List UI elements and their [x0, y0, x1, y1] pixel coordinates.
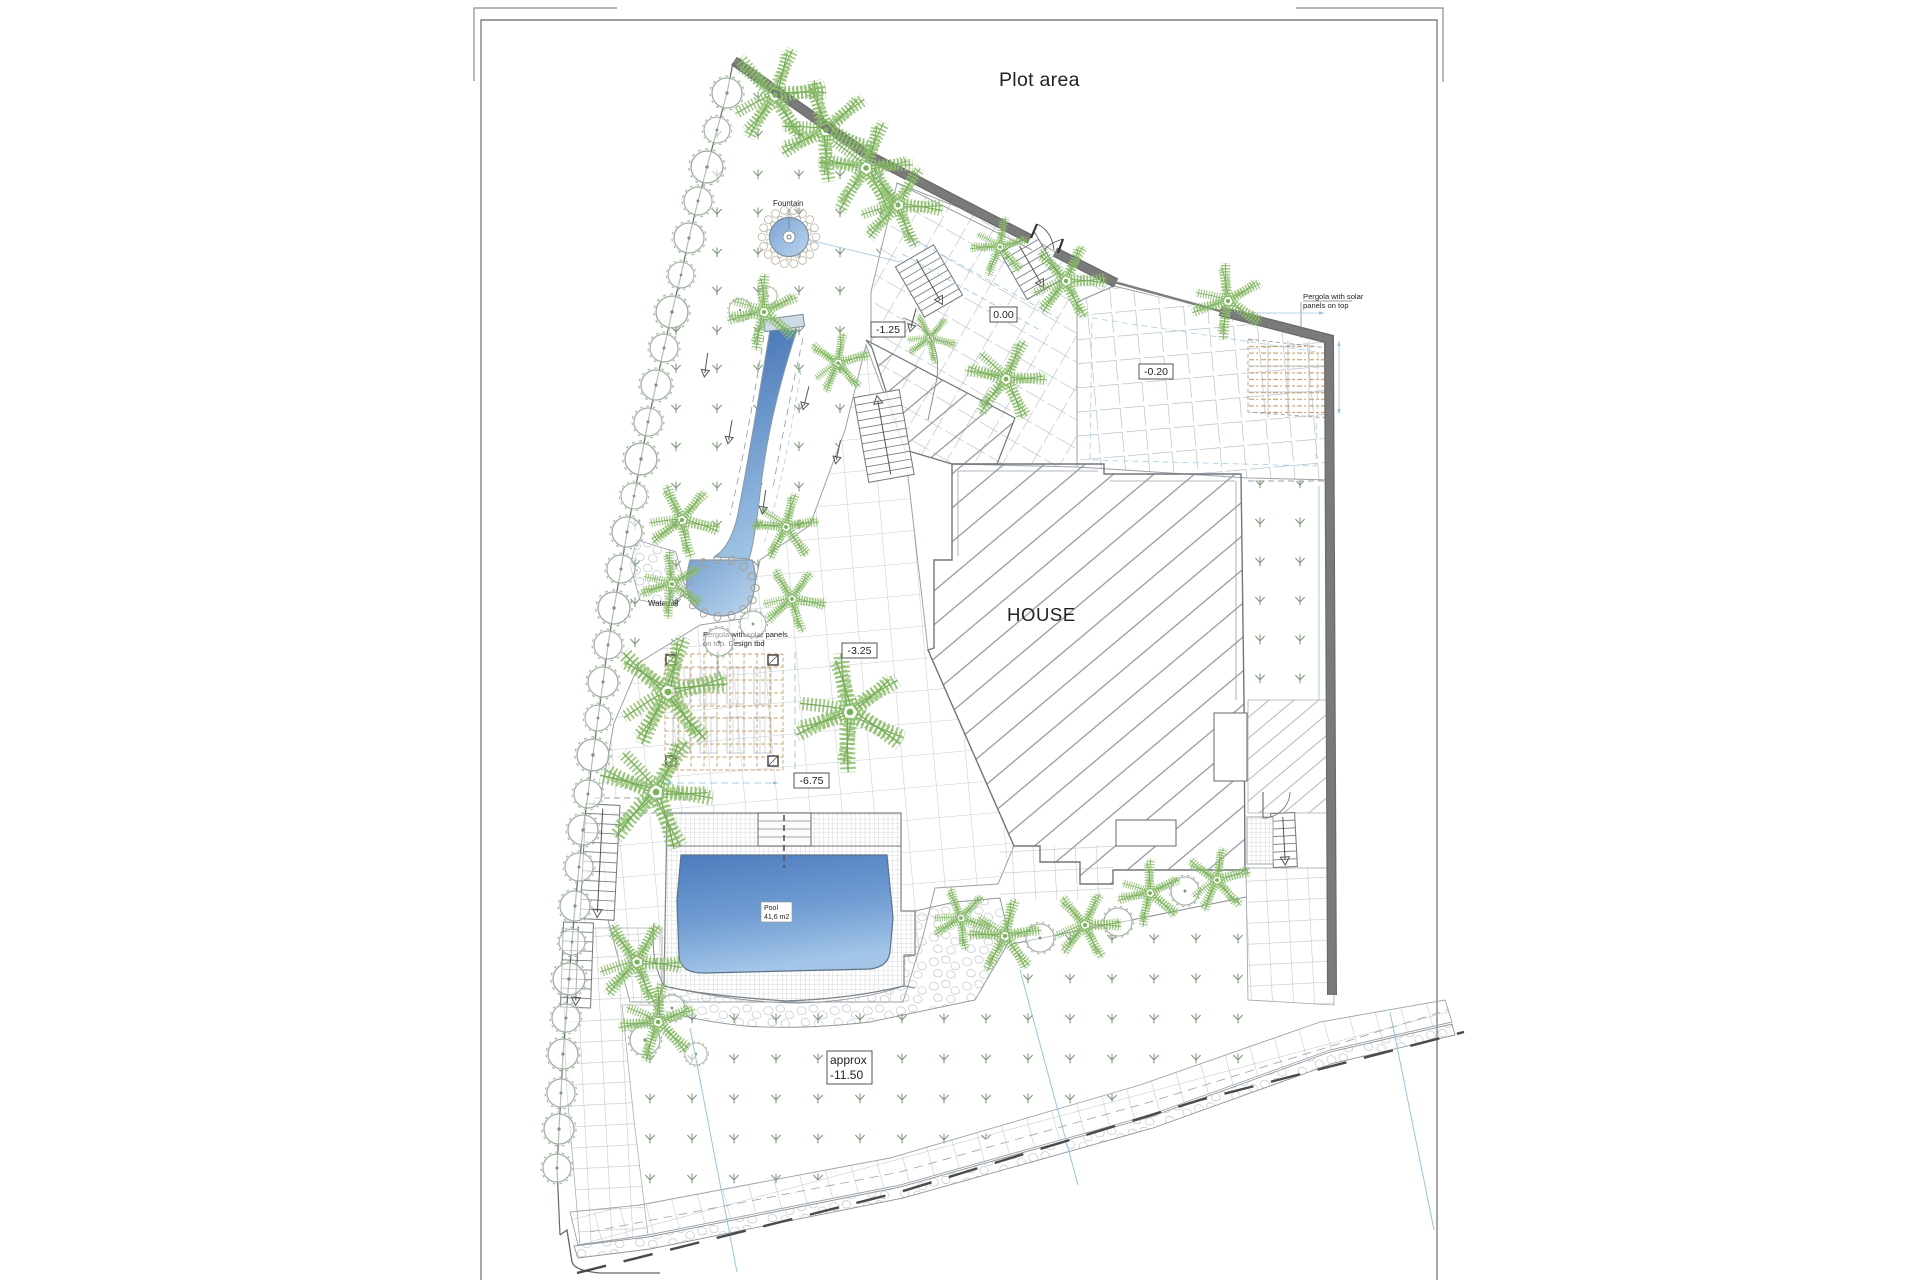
- svg-text:0.00: 0.00: [993, 309, 1014, 321]
- svg-text:Waterfall: Waterfall: [648, 599, 679, 608]
- svg-text:-11.50: -11.50: [830, 1068, 863, 1082]
- svg-text:panels on top: panels on top: [1303, 301, 1349, 310]
- svg-text:Pergola with solar: Pergola with solar: [1303, 292, 1364, 301]
- svg-text:Plot area: Plot area: [999, 69, 1080, 91]
- svg-text:HOUSE: HOUSE: [1007, 604, 1076, 625]
- svg-text:-0.20: -0.20: [1144, 366, 1168, 378]
- svg-text:-3.25: -3.25: [848, 645, 872, 657]
- svg-text:-6.75: -6.75: [800, 775, 824, 787]
- svg-text:41,6 m2: 41,6 m2: [764, 914, 789, 921]
- svg-text:approx: approx: [830, 1053, 867, 1067]
- svg-text:Fountain: Fountain: [773, 199, 803, 208]
- svg-text:-1.25: -1.25: [876, 324, 900, 336]
- svg-text:Pool: Pool: [764, 905, 778, 912]
